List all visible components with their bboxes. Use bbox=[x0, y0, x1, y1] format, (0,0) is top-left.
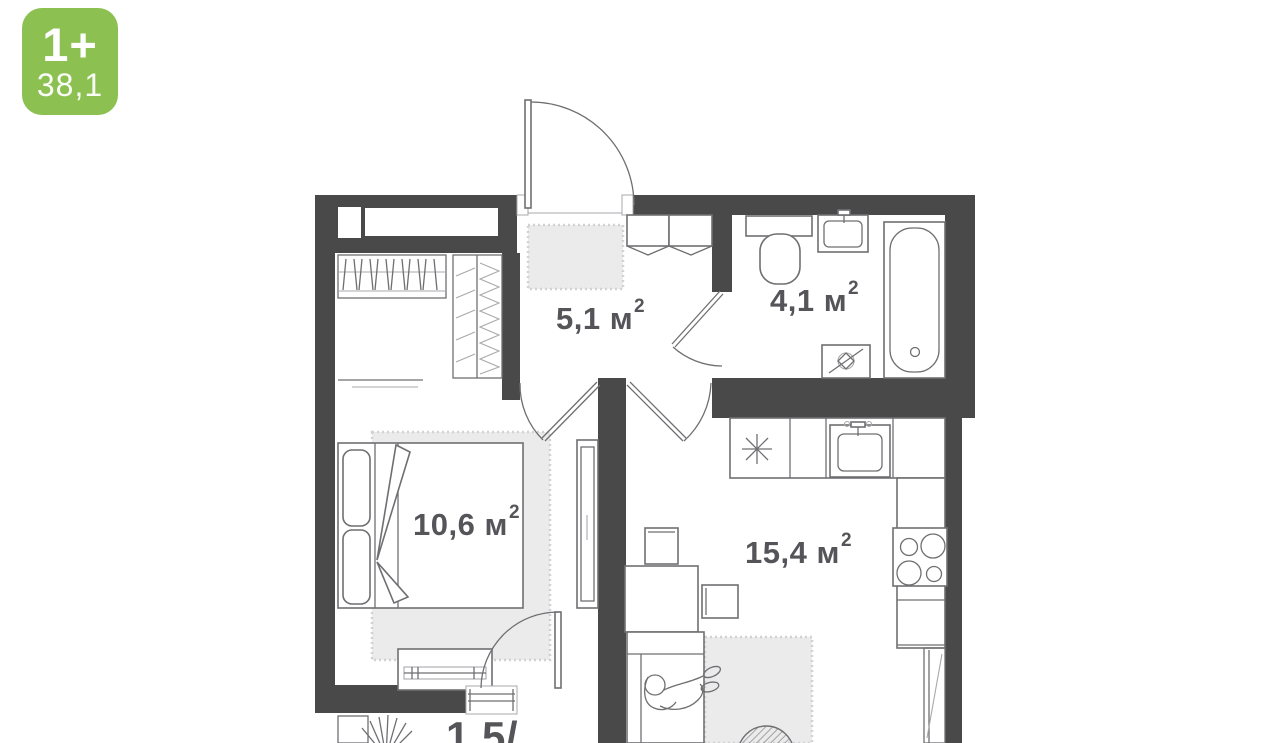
wall-niche bbox=[338, 207, 361, 238]
balcony-window bbox=[466, 686, 517, 714]
badge-total-area: 38,1 bbox=[37, 68, 103, 103]
chair bbox=[645, 528, 678, 564]
sofa bbox=[627, 632, 704, 743]
chair bbox=[702, 585, 738, 618]
fridge-icon bbox=[742, 434, 772, 464]
kitchen-window bbox=[924, 648, 945, 743]
dining-set bbox=[625, 528, 738, 632]
living-room-door bbox=[627, 382, 711, 441]
entrance-door-leaf bbox=[525, 100, 531, 208]
living-room-door-swing bbox=[684, 383, 711, 441]
room-label-hallway: 5,1 м bbox=[556, 301, 633, 336]
entry-doormat bbox=[528, 225, 623, 289]
hallway-cabinets bbox=[627, 215, 712, 255]
pillow bbox=[343, 530, 370, 604]
tv-unit bbox=[577, 440, 598, 608]
room-label-hallway-sup: 2 bbox=[634, 296, 645, 317]
pillow bbox=[343, 450, 370, 526]
room-label-bathroom: 4,1 м bbox=[770, 283, 847, 318]
wall-shelf bbox=[338, 380, 423, 387]
wardrobe-shelves bbox=[453, 255, 502, 378]
bathtub bbox=[884, 222, 945, 378]
floor-plan-page: 5,1 м 2 4,1 м 2 10,6 м 2 15,4 м 2 1,5/ 1… bbox=[0, 0, 1280, 743]
kitchen-sink bbox=[830, 422, 890, 478]
wall-niche bbox=[365, 208, 498, 236]
room-label-kitchen-living: 15,4 м bbox=[745, 535, 840, 570]
entrance-door bbox=[517, 100, 634, 215]
toilet bbox=[746, 216, 812, 284]
room-label-balcony: 1,5/ bbox=[446, 713, 518, 743]
room-label-bathroom-sup: 2 bbox=[848, 278, 859, 299]
bathroom-sink bbox=[818, 210, 868, 252]
radiator bbox=[398, 649, 492, 690]
room-label-bedroom: 10,6 м bbox=[413, 507, 508, 542]
floor-plan-drawing: 5,1 м 2 4,1 м 2 10,6 м 2 15,4 м 2 1,5/ bbox=[0, 0, 1280, 743]
closet-hanging bbox=[338, 255, 446, 298]
plant-icon bbox=[362, 715, 412, 743]
stove bbox=[893, 528, 947, 586]
entrance-door-swing bbox=[531, 102, 634, 205]
balcony bbox=[338, 715, 412, 743]
table bbox=[625, 566, 698, 632]
floor-drain-box bbox=[822, 345, 870, 378]
apartment-badge: 1+ 38,1 bbox=[22, 8, 118, 115]
badge-rooms-label: 1+ bbox=[42, 21, 98, 68]
room-label-bedroom-sup: 2 bbox=[509, 502, 520, 523]
bathroom-door bbox=[672, 291, 723, 366]
door-jamb bbox=[622, 195, 633, 215]
balcony-door-leaf bbox=[555, 612, 561, 688]
room-label-kitchen-living-sup: 2 bbox=[841, 530, 852, 551]
bathroom-door-swing bbox=[673, 347, 722, 366]
